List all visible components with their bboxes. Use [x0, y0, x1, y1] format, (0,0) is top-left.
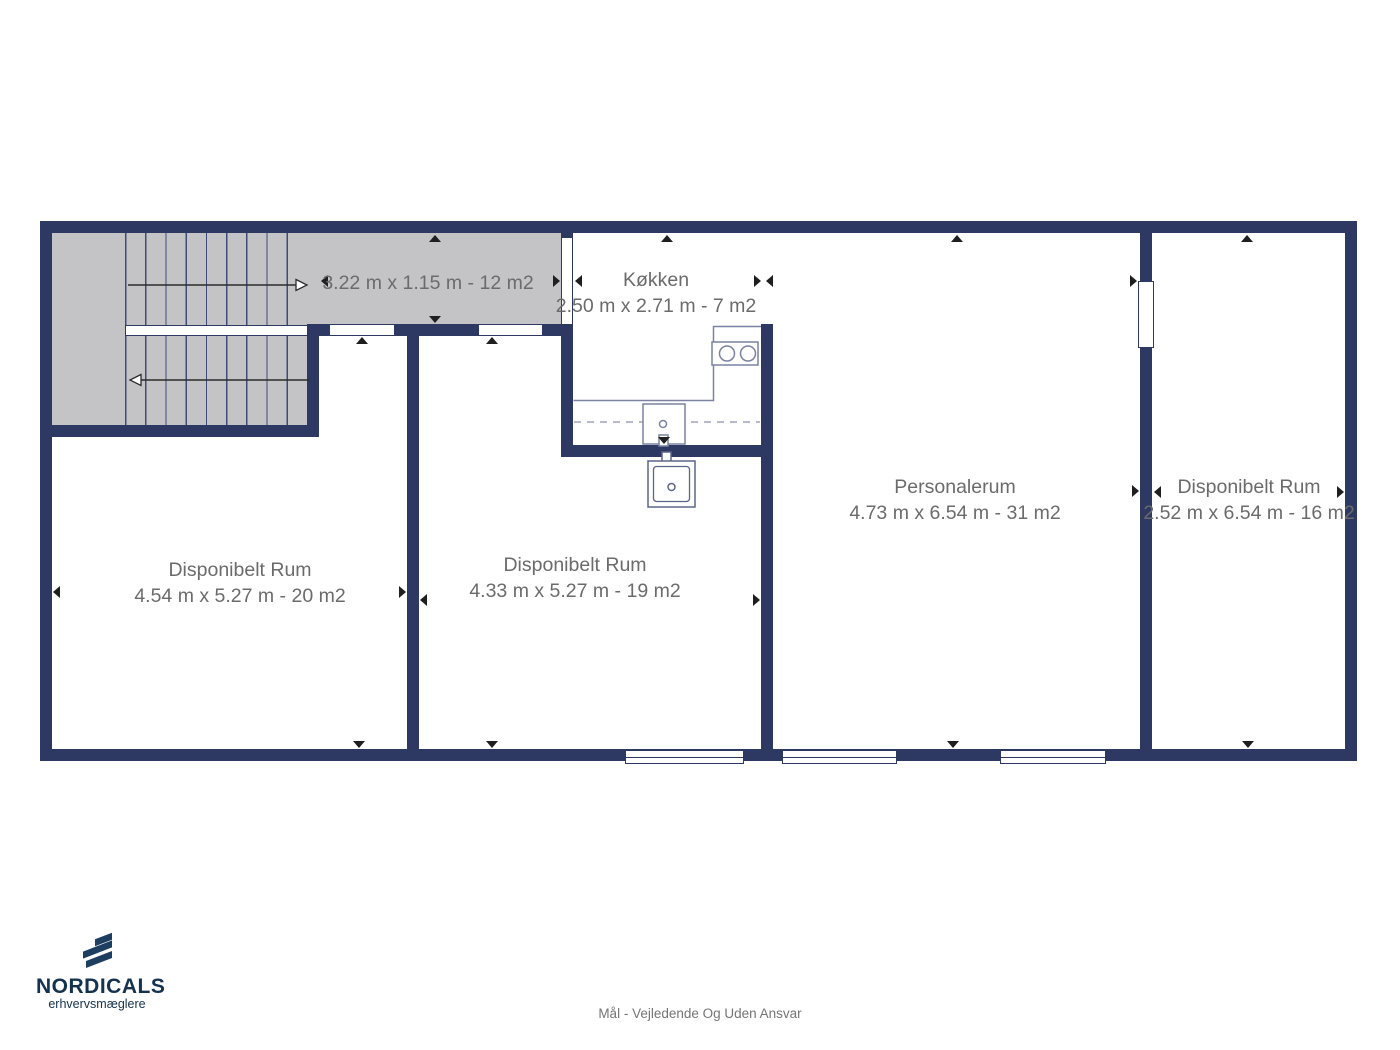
- floor-plan-page: 3.22 m x 1.15 m - 12 m2 Køkken 2.50 m x …: [0, 0, 1400, 1050]
- corridor-dimensions: 3.22 m x 1.15 m - 12 m2: [322, 270, 533, 296]
- room-right-name: Disponibelt Rum: [1143, 474, 1354, 500]
- dimension-arrow: [429, 235, 441, 242]
- staircase-rail: [125, 325, 308, 336]
- logo-wordmark: NORDICALS: [36, 975, 158, 999]
- door-opening-room-right: [1138, 281, 1154, 348]
- wall-stair-right: [307, 324, 319, 437]
- door-opening-room-left: [330, 324, 394, 336]
- room-middle-label: Disponibelt Rum 4.33 m x 5.27 m - 19 m2: [469, 552, 680, 604]
- dimension-arrow: [399, 586, 406, 598]
- dimension-arrow: [486, 741, 498, 748]
- corridor-label: 3.22 m x 1.15 m - 12 m2: [322, 270, 533, 296]
- dimension-arrow: [1242, 741, 1254, 748]
- room-left-dimensions: 4.54 m x 5.27 m - 20 m2: [134, 583, 345, 609]
- dimension-arrow: [1241, 235, 1253, 242]
- wall-stair-bottom: [52, 425, 307, 437]
- dimension-arrow: [947, 741, 959, 748]
- wall-corridor-seg3: [542, 324, 561, 336]
- nordicals-logo-icon: [82, 936, 112, 966]
- dimension-arrow: [661, 235, 673, 242]
- dimension-arrow: [951, 235, 963, 242]
- wall-middle-staffroom: [761, 324, 773, 761]
- staff-room-dimensions: 4.73 m x 6.54 m - 31 m2: [849, 500, 1060, 526]
- room-right-dimensions: 2.52 m x 6.54 m - 16 m2: [1143, 500, 1354, 526]
- disclaimer-text: Mål - Vejledende Og Uden Ansvar: [0, 1006, 1400, 1021]
- dimension-arrow: [658, 437, 670, 444]
- room-middle-name: Disponibelt Rum: [469, 552, 680, 578]
- kitchen-counter: [574, 327, 762, 423]
- dimension-arrow: [420, 594, 427, 606]
- staff-room-label: Personalerum 4.73 m x 6.54 m - 31 m2: [849, 474, 1060, 526]
- kitchen-name: Køkken: [556, 267, 757, 293]
- wall-kitchen-left: [561, 324, 573, 457]
- dimension-arrow: [353, 741, 365, 748]
- dimension-arrow: [53, 586, 60, 598]
- kitchen-label: Køkken 2.50 m x 2.71 m - 7 m2: [556, 267, 757, 319]
- window-staffroom-left: [782, 750, 897, 764]
- wall-kitchen-bottom: [561, 445, 773, 457]
- room-middle-dimensions: 4.33 m x 5.27 m - 19 m2: [469, 578, 680, 604]
- room-left-name: Disponibelt Rum: [134, 557, 345, 583]
- staircase-treads-upper: [125, 233, 307, 326]
- dimension-arrow: [356, 337, 368, 344]
- window-staffroom-right: [1000, 750, 1106, 764]
- wall-room-left-middle: [407, 324, 419, 761]
- room-left-label: Disponibelt Rum 4.54 m x 5.27 m - 20 m2: [134, 557, 345, 609]
- staff-room-name: Personalerum: [849, 474, 1060, 500]
- dimension-arrow: [1130, 275, 1137, 287]
- wash-basin: [648, 452, 695, 507]
- window-room-middle: [625, 750, 744, 764]
- dimension-arrow: [766, 275, 773, 287]
- dimension-arrow: [753, 594, 760, 606]
- wall-corridor-seg1: [319, 324, 330, 336]
- dimension-arrow: [1132, 485, 1139, 497]
- door-opening-room-middle: [479, 324, 542, 336]
- kitchen-dimensions: 2.50 m x 2.71 m - 7 m2: [556, 293, 757, 319]
- dimension-arrow: [429, 316, 441, 323]
- wall-outer-top: [40, 221, 1357, 233]
- stove: [712, 342, 758, 365]
- room-right-label: Disponibelt Rum 2.52 m x 6.54 m - 16 m2: [1143, 474, 1354, 526]
- dimension-arrow: [486, 337, 498, 344]
- wall-outer-left: [40, 221, 52, 761]
- staircase-treads-lower: [125, 336, 307, 425]
